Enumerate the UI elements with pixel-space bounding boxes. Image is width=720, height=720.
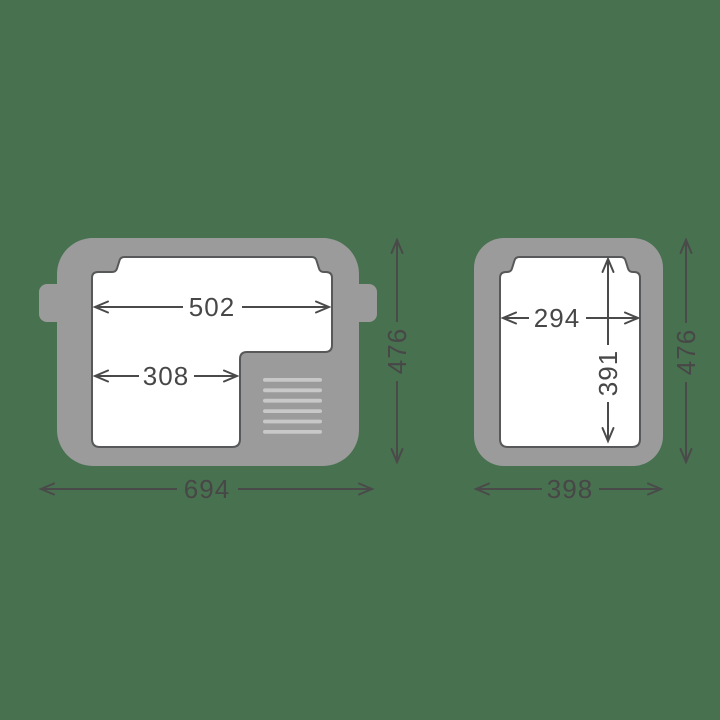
dim-front-outer-height: 476 <box>671 240 701 462</box>
dim-label-476-right: 476 <box>671 329 701 375</box>
dim-label-391: 391 <box>593 350 623 396</box>
vent-bar <box>263 430 322 434</box>
vent-bar <box>263 420 322 424</box>
dim-top-outer-depth: 476 <box>382 240 412 462</box>
dim-label-398: 398 <box>547 474 593 504</box>
vent-bar <box>263 399 322 403</box>
dim-top-outer-width: 694 <box>41 474 372 504</box>
dim-label-694: 694 <box>184 474 230 504</box>
dim-label-294: 294 <box>534 303 580 333</box>
vent-bar <box>263 378 322 382</box>
dimension-diagram-svg: 502 308 694 <box>0 0 720 720</box>
diagram-canvas: 502 308 694 <box>0 0 720 720</box>
dim-label-476-left: 476 <box>382 328 412 374</box>
top-view: 502 308 694 <box>39 238 412 504</box>
dim-label-308: 308 <box>143 361 189 391</box>
vent-bar <box>263 388 322 392</box>
vent-bar <box>263 409 322 413</box>
dim-label-502: 502 <box>189 292 235 322</box>
dim-front-outer-width: 398 <box>476 474 661 504</box>
front-view: 294 391 476 <box>474 238 701 504</box>
